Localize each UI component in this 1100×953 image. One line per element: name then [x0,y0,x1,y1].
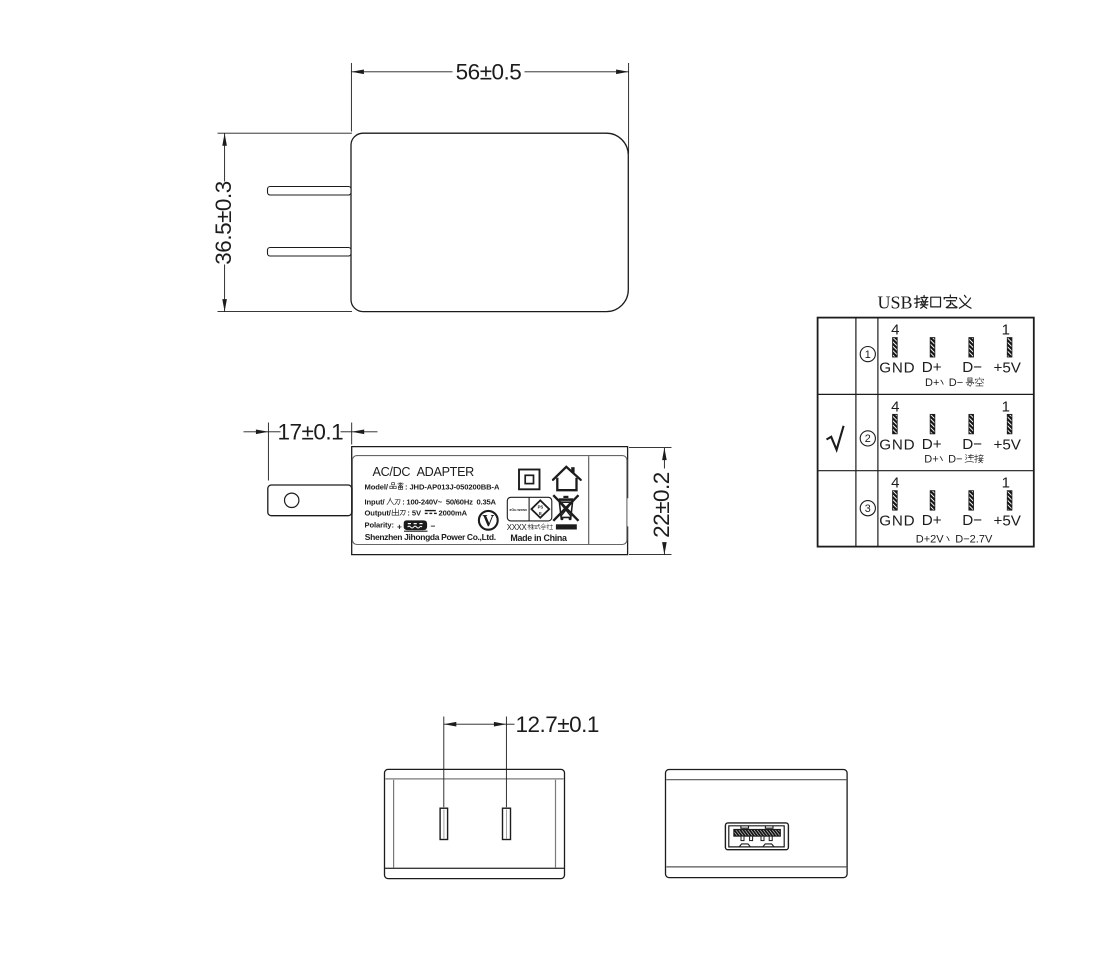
svg-text:: 5V: : 5V [407,508,422,517]
svg-text:4: 4 [891,475,899,492]
svg-text:D−: D− [949,377,963,389]
svg-text:AC/DC ADAPTER: AC/DC ADAPTER [373,465,475,479]
svg-text:D+: D+ [922,359,942,376]
svg-text:GND: GND [879,513,915,530]
svg-text:xOu wxwx: xOu wxwx [509,508,527,512]
svg-text:GND: GND [879,436,915,453]
svg-text:+5V: +5V [993,436,1021,453]
svg-text:D+: D+ [924,454,938,466]
svg-text:D−: D− [962,359,982,376]
svg-text:+5V: +5V [993,513,1021,530]
svg-text:1: 1 [1002,398,1010,415]
svg-text:Output/: Output/ [365,508,392,517]
svg-text:D−: D− [948,454,962,466]
svg-text:D−: D− [962,512,982,529]
svg-text:12.7±0.1: 12.7±0.1 [516,712,599,737]
svg-text:1: 1 [1002,475,1010,492]
svg-text:1: 1 [865,349,871,361]
svg-text:+: + [397,522,402,531]
svg-text:D+: D+ [925,377,939,389]
svg-text:D−: D− [962,436,982,453]
svg-text:Shenzhen Jihongda Power Co.,Lt: Shenzhen Jihongda Power Co.,Ltd. [365,532,496,542]
svg-text:: 100-240V~ 50/60Hz 0.35A: : 100-240V~ 50/60Hz 0.35A [402,498,496,507]
svg-text:1: 1 [1002,322,1010,339]
svg-text:+5V: +5V [993,360,1021,377]
svg-text:3: 3 [865,503,871,515]
svg-text:Model/: Model/ [365,482,389,491]
svg-text:D−2.7V: D−2.7V [955,534,993,546]
svg-text:2: 2 [865,433,871,445]
svg-text:36.5±0.3: 36.5±0.3 [211,181,236,264]
svg-text:XXXX: XXXX [507,523,528,532]
svg-text:D+: D+ [922,512,942,529]
svg-text:Input/: Input/ [365,498,386,507]
svg-text:Polarity:: Polarity: [365,520,394,529]
svg-text:−: − [431,521,436,531]
svg-text:17±0.1: 17±0.1 [277,420,343,445]
svg-text:Made in China: Made in China [510,533,567,543]
svg-text:D+2V: D+2V [916,534,944,546]
svg-text:22±0.2: 22±0.2 [649,472,674,538]
svg-text:4: 4 [891,322,899,339]
svg-text:E: E [539,511,542,516]
svg-text:2000mA: 2000mA [439,508,468,517]
svg-text:USB: USB [878,293,913,313]
svg-text:: JHD-AP013J-050200BB-A: : JHD-AP013J-050200BB-A [405,482,500,491]
svg-text:4: 4 [891,398,899,415]
svg-text:V: V [482,511,494,530]
svg-text:D+: D+ [922,436,942,453]
svg-text:PS: PS [538,505,544,510]
svg-text:56±0.5: 56±0.5 [456,60,522,85]
svg-text:GND: GND [879,360,915,377]
